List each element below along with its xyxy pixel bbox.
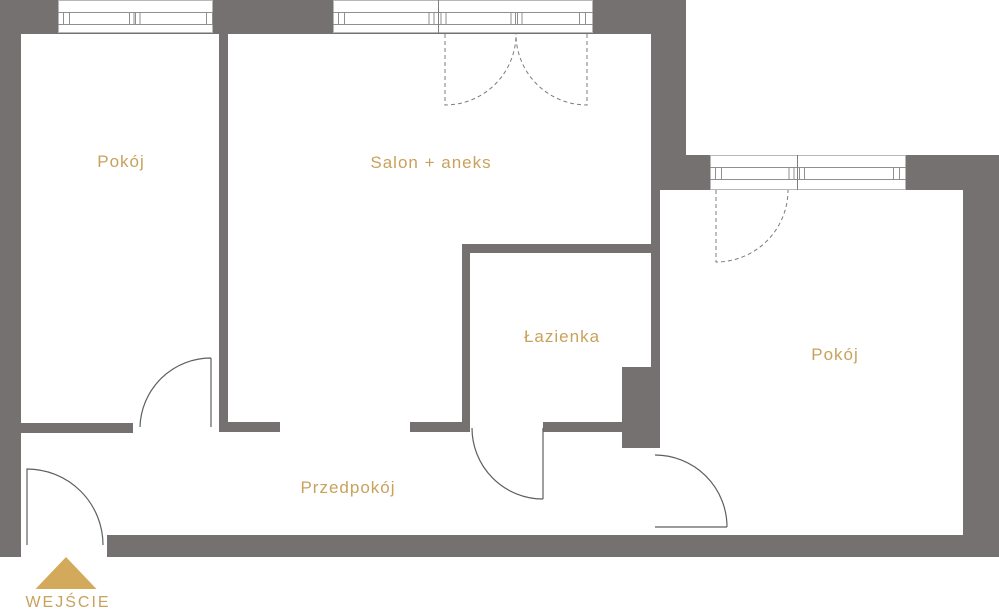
window-salon <box>333 0 593 33</box>
balcony-door-salon-left <box>445 34 516 105</box>
triangle-up-icon <box>36 557 97 589</box>
room-label-pokoj-right: Pokój <box>811 345 859 365</box>
door-room-left <box>140 358 211 427</box>
room-label-salon: Salon + aneks <box>370 153 491 173</box>
room-label-pokoj-left: Pokój <box>97 152 145 172</box>
door-entrance <box>27 469 103 545</box>
balcony-door-salon-right <box>516 34 587 105</box>
room-label-przedpokoj: Przedpokój <box>300 478 395 498</box>
door-bathroom <box>472 428 543 499</box>
balcony-door-room-right <box>716 190 788 262</box>
entrance-label: WEJŚCIE <box>25 594 110 612</box>
room-label-lazienka: Łazienka <box>524 327 600 347</box>
plan-linework <box>0 0 999 613</box>
window-room-left <box>58 1 213 33</box>
window-room-right <box>710 155 906 190</box>
floor-plan: Pokój Salon + aneks Łazienka Przedpokój … <box>0 0 999 613</box>
door-room-right <box>655 455 727 527</box>
